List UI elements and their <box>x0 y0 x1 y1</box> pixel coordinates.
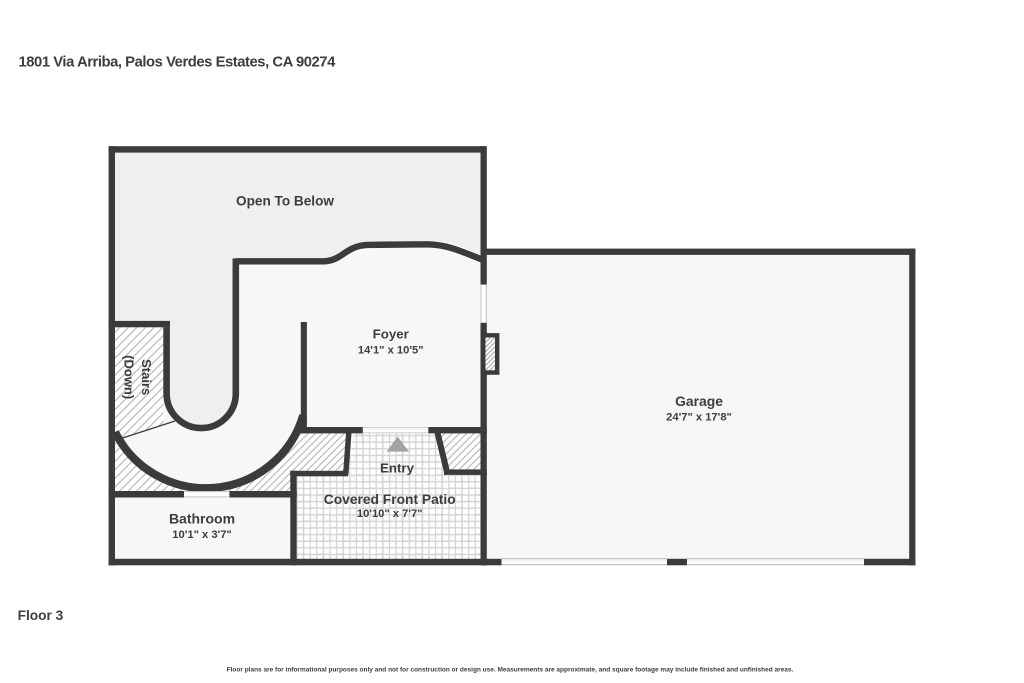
svg-text:Covered Front Patio: Covered Front Patio <box>324 492 456 507</box>
svg-text:Open To Below: Open To Below <box>236 194 334 209</box>
svg-text:Garage: Garage <box>675 393 723 409</box>
svg-text:Entry: Entry <box>380 461 415 476</box>
svg-text:10'1" x 3'7": 10'1" x 3'7" <box>172 529 231 541</box>
svg-text:Floor 3: Floor 3 <box>18 608 64 623</box>
svg-text:24'7" x 17'8": 24'7" x 17'8" <box>666 412 732 424</box>
svg-text:1801 Via Arriba, Palos Verdes: 1801 Via Arriba, Palos Verdes Estates, C… <box>19 55 337 71</box>
svg-text:Floor plans are for informatio: Floor plans are for informational purpos… <box>227 667 794 674</box>
svg-text:10'10" x 7'7": 10'10" x 7'7" <box>357 508 423 520</box>
svg-text:Bathroom: Bathroom <box>169 511 235 527</box>
svg-text:14'1" x 10'5": 14'1" x 10'5" <box>358 345 424 357</box>
svg-text:Foyer: Foyer <box>373 327 409 342</box>
